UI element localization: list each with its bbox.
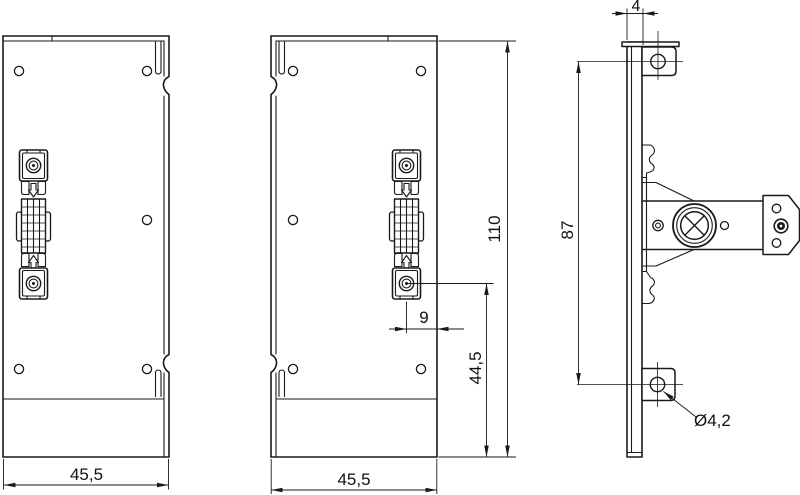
top-flange: [622, 42, 679, 47]
side-panel-bar: [627, 42, 642, 457]
dim-label-latch-to-bottom: 44,5: [466, 351, 485, 384]
technical-drawing-canvas: 45,5 45,5 9 44,5: [0, 0, 800, 495]
dimension-hole-spacing: 87: [558, 62, 581, 385]
front-view-middle: 45,5 9 44,5 110: [271, 36, 516, 494]
dim-label-width-middle: 45,5: [337, 470, 370, 489]
dim-label-width-left: 45,5: [70, 465, 103, 484]
side-view: 4 87 Ø4,2: [558, 0, 800, 457]
end-plate-hole: [772, 239, 781, 248]
dim-label-thickness: 4: [632, 0, 641, 15]
drawing-svg: 45,5 45,5 9 44,5: [0, 0, 800, 495]
dim-label-hole-diameter: Ø4,2: [694, 411, 731, 430]
cam-wheel: [673, 204, 716, 247]
dimension-total-height: 110: [439, 41, 517, 457]
dimension-width-left: 45,5: [4, 459, 169, 490]
end-plate-bushing: [774, 219, 788, 233]
dimension-latch-offset: 9: [389, 302, 464, 334]
dimension-thickness: 4: [612, 0, 658, 45]
end-plate-hole: [772, 204, 781, 213]
dim-label-hole-spacing: 87: [558, 221, 577, 240]
dim-label-latch-offset: 9: [419, 308, 428, 327]
front-view-left: 45,5: [3, 36, 169, 490]
dim-label-total-height: 110: [485, 215, 504, 242]
dimension-width-middle: 45,5: [271, 459, 437, 494]
arm-rivet: [653, 220, 663, 230]
connector-arm: [643, 196, 800, 255]
arm-rivet: [721, 222, 729, 230]
